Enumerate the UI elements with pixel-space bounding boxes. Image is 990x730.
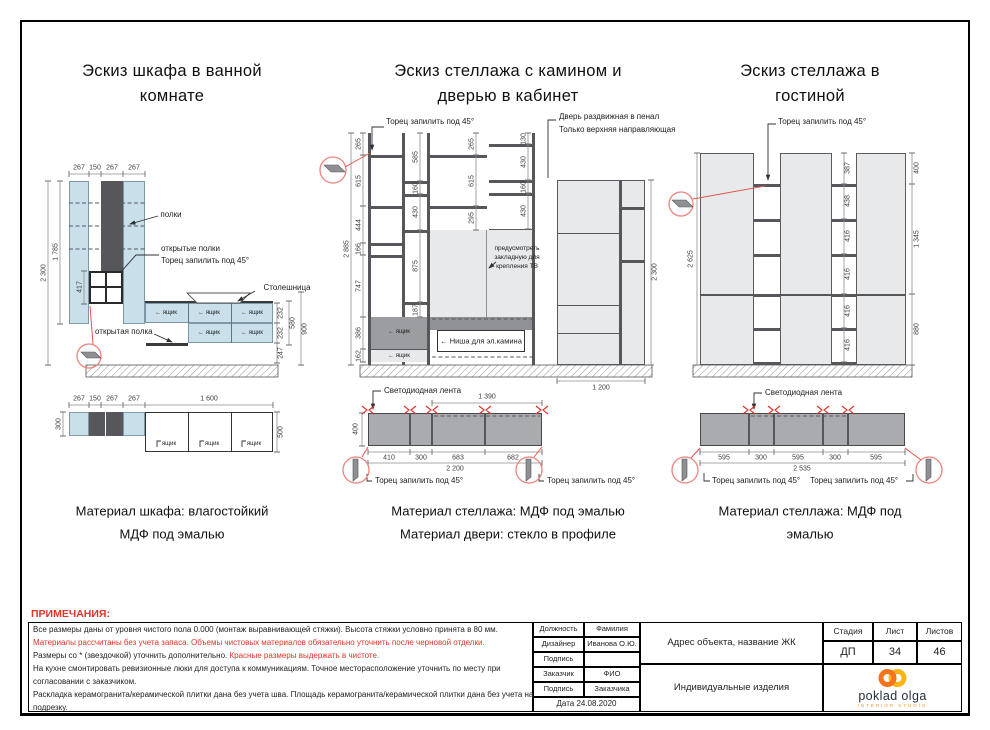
sk3-shelf (832, 362, 856, 365)
tb-sheet-header: Лист (873, 622, 917, 641)
logo-infinity-icon (873, 668, 913, 690)
dim-label: 747 (356, 280, 363, 292)
sk3-panel (700, 153, 754, 365)
dim-label: 267 (73, 396, 85, 403)
dim-label: 160 (521, 181, 528, 193)
dim-label: 267 (73, 165, 85, 172)
dim-label: 430 (413, 206, 420, 218)
dim-label: 267 (106, 165, 118, 172)
sk1-plan-blue-left (69, 412, 89, 436)
sk3-plan (700, 413, 905, 446)
drawer-label: ← ящик (155, 310, 177, 316)
dim-label: 387 (845, 162, 852, 174)
sk2-shelf (430, 206, 487, 209)
sk2-plan-divider (409, 413, 411, 446)
drawer-label: ящик (247, 441, 261, 447)
tb-logo-cell: poklad olga INTERIOR STUDIO (823, 664, 962, 712)
sk1-title-line1: Эскиз шкафа в ванной (82, 63, 262, 80)
sk3-shelf (754, 219, 780, 222)
tb-signature2-label: Подпись (533, 682, 584, 697)
sk3-caption-line2: эмалью (787, 528, 834, 541)
sk2-door-line (557, 305, 619, 306)
dim-label: 232 (278, 327, 285, 339)
sk3-shelf (754, 362, 780, 365)
sk1-row1-divider (188, 303, 189, 323)
dim-label: 400 (914, 162, 921, 174)
dim-label: 130 (521, 133, 528, 145)
dim-label: 2 885 (344, 240, 351, 258)
sk2-miter-label: Торец запилить под 45° (386, 118, 474, 126)
sk1-caption-line2: МДФ под эмалью (120, 528, 225, 541)
drawer-label: ← ящик (388, 329, 410, 335)
sk3-title-line2: гостиной (775, 88, 845, 105)
sk2-shelf (430, 155, 487, 158)
sk2-led-label: Светодиодная лента (384, 387, 461, 395)
dim-label: 162 (356, 350, 363, 362)
dim-label: 1 200 (592, 385, 610, 392)
note-line: Все размеры даны от уровня чистого пола … (33, 626, 498, 634)
tb-signature-value (584, 652, 640, 667)
sk1-column-right (123, 181, 145, 324)
drawer-label: ящик (162, 441, 176, 447)
dim-label: 580 (290, 317, 297, 329)
drawer-label: ← ящик (241, 310, 263, 316)
sk1-row2-divider (231, 323, 232, 343)
sk2-door-shelf (622, 207, 645, 210)
dim-label: 2 300 (41, 264, 48, 282)
sk2-shelf (371, 206, 402, 209)
sk3-shelf (754, 254, 780, 257)
sk1-plan-dark (89, 412, 123, 436)
sk1-open-shelf-label: открытая полка (95, 328, 153, 336)
dim-label: 416 (845, 339, 852, 351)
sk2-door-note-line2: Только верхняя направляющая (559, 126, 675, 134)
drawer-label: ← ящик (198, 310, 220, 316)
dim-label: 683 (452, 455, 464, 462)
sk3-panel-joint (856, 294, 906, 296)
sk3-plan-divider (773, 413, 775, 446)
dim-label: 615 (356, 175, 363, 187)
sk3-plan-divider (847, 413, 849, 446)
sk1-row1-divider (231, 303, 232, 323)
drawer-label: ← ящик (198, 330, 220, 336)
sk3-shelf (832, 254, 856, 257)
logo-subtext: INTERIOR STUDIO (858, 704, 928, 709)
sk2-shelf (405, 230, 427, 233)
sk2-plan (368, 413, 542, 446)
sk3-panel-joint (780, 294, 832, 296)
dim-label: 430 (521, 205, 528, 217)
sk2-shelf (371, 255, 402, 258)
sk3-plan-divider (748, 413, 750, 446)
sk1-countertop-label: Столешница (263, 284, 310, 292)
sk2-title-line2: дверью в кабинет (438, 88, 579, 105)
note-line: Материалы рассчитаны без учета запаса. О… (33, 639, 485, 647)
dim-label: 900 (302, 323, 309, 335)
dim-label: 1 600 (200, 396, 218, 403)
sk3-panel (780, 153, 832, 365)
tb-role-header: Должность (533, 622, 584, 637)
tb-sheets-value: 46 (917, 641, 962, 664)
dim-label: 267 (106, 396, 118, 403)
dim-label: 417 (77, 281, 84, 293)
sk3-panel-joint (700, 294, 754, 296)
sk3-plan-divider (822, 413, 824, 446)
dim-label: 430 (521, 156, 528, 168)
sk2-fireplace-label: ← Ниша для эл.камина (440, 337, 522, 345)
dim-label: 682 (507, 455, 519, 462)
tb-client-name: ФИО (584, 667, 640, 682)
tb-client-label: Заказчик (533, 667, 584, 682)
tb-product: Индивидуальные изделия (640, 664, 823, 712)
sk2-plan-divider (431, 413, 433, 446)
sk3-shelf (754, 328, 780, 331)
dim-label: 595 (870, 455, 882, 462)
sk3-caption-line1: Материал стеллажа: МДФ под (719, 505, 902, 518)
sk2-tv-note-line2: закладную для (494, 255, 539, 262)
dim-label: 1 390 (478, 394, 496, 401)
dim-label: 2 200 (446, 466, 464, 473)
note-line: На кухне смонтировать ревизионные люки д… (33, 665, 501, 673)
dim-label: 187 (413, 304, 420, 316)
dim-label: 265 (356, 138, 363, 150)
sk2-plan-divider (484, 413, 486, 446)
note-line: согласовании с заказчиком. (33, 678, 136, 686)
note-line: подрезку. (33, 704, 68, 712)
dim-label: 166 (356, 243, 363, 255)
drawer-label: ящик (205, 441, 219, 447)
sk1-grid-divider-h (91, 286, 121, 288)
sk2-door-line (557, 333, 619, 334)
sk1-plan-blue-right (123, 412, 145, 436)
sk3-panel (856, 153, 906, 365)
sk3-miter-label: Торец запилить под 45° (778, 118, 866, 126)
tb-date: Дата 24.08.2020 (533, 697, 640, 712)
drawer-label: ← ящик (388, 353, 410, 359)
sk1-column-left (69, 181, 89, 324)
sk2-title-line1: Эскиз стеллажа с камином и (394, 63, 622, 80)
dim-label: 300 (56, 418, 63, 430)
dim-label: 615 (469, 175, 476, 187)
notes-heading: ПРИМЕЧАНИЯ: (31, 609, 110, 620)
sk3-led-label: Светодиодная лента (765, 389, 842, 397)
dim-label: 267 (128, 396, 140, 403)
dim-label: 444 (356, 219, 363, 231)
dim-label: 2 300 (652, 263, 659, 281)
sk3-shelf (754, 294, 780, 297)
dim-label: 1 785 (53, 243, 60, 261)
dim-label: 595 (792, 455, 804, 462)
dim-label: 585 (413, 151, 420, 163)
sk1-column-dark (101, 181, 123, 271)
dim-label: 150 (89, 165, 101, 172)
drawing-sheet: Эскиз шкафа в ванной комнате 267 150 267… (0, 0, 990, 730)
dim-label: 160 (413, 182, 420, 194)
dim-label: 880 (914, 323, 921, 335)
sk3-title-line1: Эскиз стеллажа в (740, 63, 880, 80)
dim-label: 410 (383, 455, 395, 462)
sk2-tv-panel (430, 230, 532, 317)
sk1-plan-divider (231, 412, 232, 452)
sk2-door-note-line1: Дверь раздвижная в пенал (559, 113, 659, 121)
tb-stage-header: Стадия (823, 622, 873, 641)
sk2-fireplace-top-strip (430, 317, 532, 330)
sk2-shelf (405, 194, 427, 197)
dim-label: 416 (845, 230, 852, 242)
sk1-caption-line1: Материал шкафа: влагостойкий (76, 505, 269, 518)
sk2-tv-note-line1: предусмотреть (494, 246, 539, 253)
sk2-shelf (371, 243, 402, 246)
dim-label: 300 (829, 455, 841, 462)
tb-address: Адрес объекта, название ЖК (640, 622, 823, 664)
dim-label: 386 (356, 327, 363, 339)
dim-label: 416 (845, 268, 852, 280)
dim-label: 400 (353, 423, 360, 435)
sk1-plan-divider (188, 412, 189, 452)
sk3-shelf (832, 184, 856, 187)
dim-label: 232 (278, 307, 285, 319)
sk1-miter-label: Торец запилить под 45° (161, 257, 249, 265)
sk2-tv-panel-joint (486, 230, 487, 317)
dim-label: 416 (845, 305, 852, 317)
dim-label: 875 (413, 260, 420, 272)
dim-label: 267 (128, 165, 140, 172)
dim-label: 265 (469, 138, 476, 150)
dim-label: 2 625 (688, 250, 695, 268)
note-line3-black: Размеры со * (звездочкой) уточнить допол… (33, 651, 227, 660)
tb-sheet-value: 34 (873, 641, 917, 664)
sk3-shelf (832, 294, 856, 297)
note-line3-red: Красные размеры выдержать в чистоте. (229, 651, 379, 660)
tb-designer-name: Иванова О.Ю. (584, 637, 640, 652)
tb-sheets-header: Листов (917, 622, 962, 641)
sk2-miter-bottom-right: Торец запилить под 45° (547, 477, 635, 485)
tb-stage-value: ДП (823, 641, 873, 664)
sk1-open-shelf-bar (146, 343, 188, 346)
dim-label: 295 (469, 212, 476, 224)
sk2-caption-line2: Материал двери: стекло в профиле (400, 528, 616, 541)
sk1-open-shelves-label: открытые полки (161, 245, 220, 253)
sk2-shelf (371, 155, 402, 158)
tb-designer-label: Дизайнер (533, 637, 584, 652)
note-line: Раскладка керамогранита/керамической пли… (33, 691, 533, 699)
tb-client-sign: Заказчика (584, 682, 640, 697)
sk3-shelf (832, 219, 856, 222)
sk2-door-line (557, 233, 619, 234)
sk1-shelves-label: полки (160, 211, 181, 219)
dim-label: 438 (845, 195, 852, 207)
sk3-shelf (832, 328, 856, 331)
sk2-tv-note-line3: крепления ТВ (496, 264, 538, 271)
note-line: Размеры со * (звездочкой) уточнить допол… (33, 652, 379, 660)
dim-label: 247 (278, 347, 285, 359)
tb-name-header: Фамилия (584, 622, 640, 637)
sk3-miter-bottom-left: Торец запилить под 45° (712, 477, 800, 485)
sk2-miter-bottom-left: Торец запилить под 45° (375, 477, 463, 485)
drawer-label: ← ящик (241, 330, 263, 336)
logo-text: poklad olga (858, 690, 926, 703)
dim-label: 2 535 (793, 466, 811, 473)
sk2-caption-line1: Материал стеллажа: МДФ под эмалью (391, 505, 624, 518)
sk2-shelf (489, 193, 532, 196)
dim-label: 300 (415, 455, 427, 462)
dim-label: 150 (89, 396, 101, 403)
tb-signature-label: Подпись (533, 652, 584, 667)
sk2-door-shelf (622, 260, 645, 263)
sk3-shelf (754, 184, 780, 187)
dim-label: 500 (278, 426, 285, 438)
sk1-title-line2: комнате (140, 88, 205, 105)
dim-label: 300 (755, 455, 767, 462)
sk1-plan-dark-divider (105, 412, 106, 436)
sk3-miter-bottom-right: Торец запилить под 45° (810, 477, 898, 485)
dim-label: 1 345 (914, 230, 921, 248)
dim-label: 595 (718, 455, 730, 462)
sk1-open-shelf-grid (89, 271, 123, 304)
